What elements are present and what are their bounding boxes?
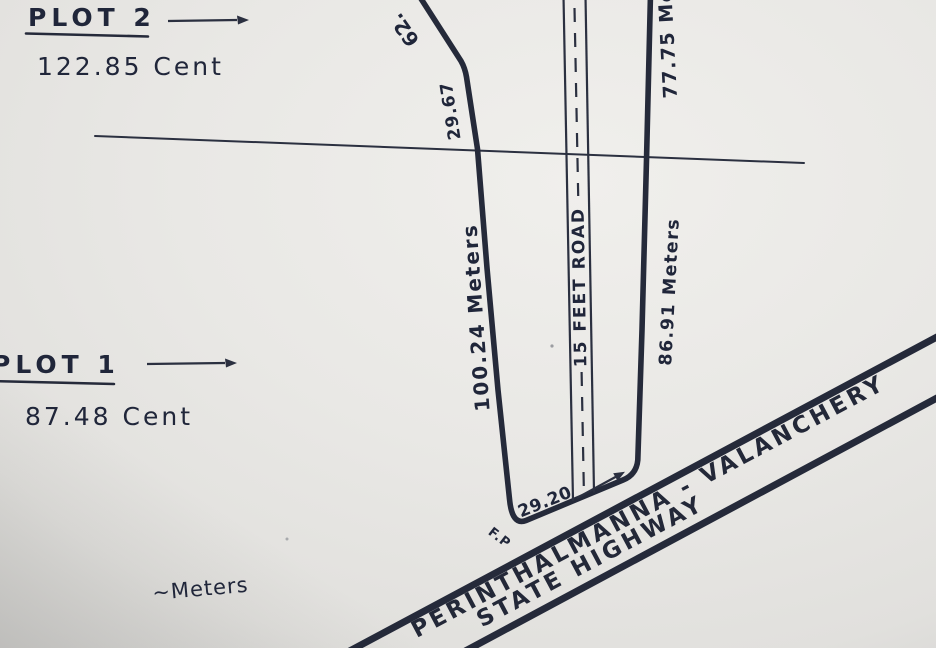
survey-sketch-page: PLOT 2 122.85 Cent PLOT 1 87.48 Cent 62.… xyxy=(0,0,936,648)
paper-speck xyxy=(550,344,553,347)
survey-sketch-drawing: PLOT 2 122.85 Cent PLOT 1 87.48 Cent 62.… xyxy=(0,0,936,648)
plot1-area: 87.48 Cent xyxy=(25,402,193,431)
road-label: 15 FEET ROAD xyxy=(569,207,592,368)
plot2-title: PLOT 2 xyxy=(28,3,156,32)
plot1-title: PLOT 1 xyxy=(0,350,120,379)
plot2-arrow-shaft xyxy=(168,20,237,21)
plot2-area: 122.85 Cent xyxy=(37,52,224,81)
paper-speck xyxy=(286,538,289,541)
plot1-arrow-shaft xyxy=(147,363,225,364)
